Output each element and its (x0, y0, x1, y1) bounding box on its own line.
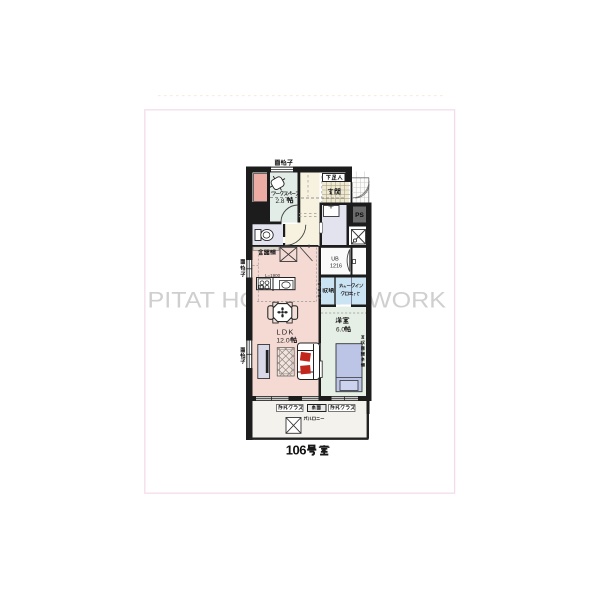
svg-text:L=1900: L=1900 (265, 273, 281, 278)
svg-text:UB: UB (331, 257, 339, 263)
svg-text:1216: 1216 (330, 264, 342, 270)
svg-text:6.0: 6.0 (336, 327, 345, 334)
svg-text:LDK: LDK (276, 328, 294, 337)
svg-text:2.8: 2.8 (276, 198, 285, 205)
svg-text:PS: PS (355, 212, 364, 219)
svg-text:106: 106 (286, 443, 306, 458)
svg-text:12.0: 12.0 (276, 338, 289, 345)
